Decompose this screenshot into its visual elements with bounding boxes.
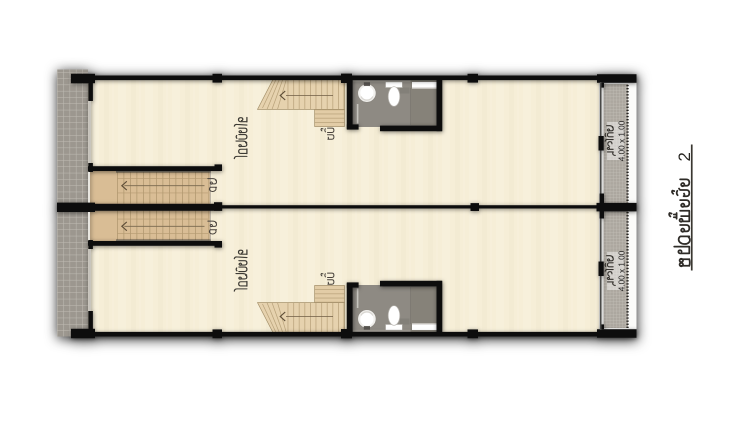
svg-text:4.00 x 1.00: 4.00 x 1.00 — [618, 250, 627, 291]
svg-text:4.00 x 1.00: 4.00 x 1.00 — [618, 120, 627, 161]
